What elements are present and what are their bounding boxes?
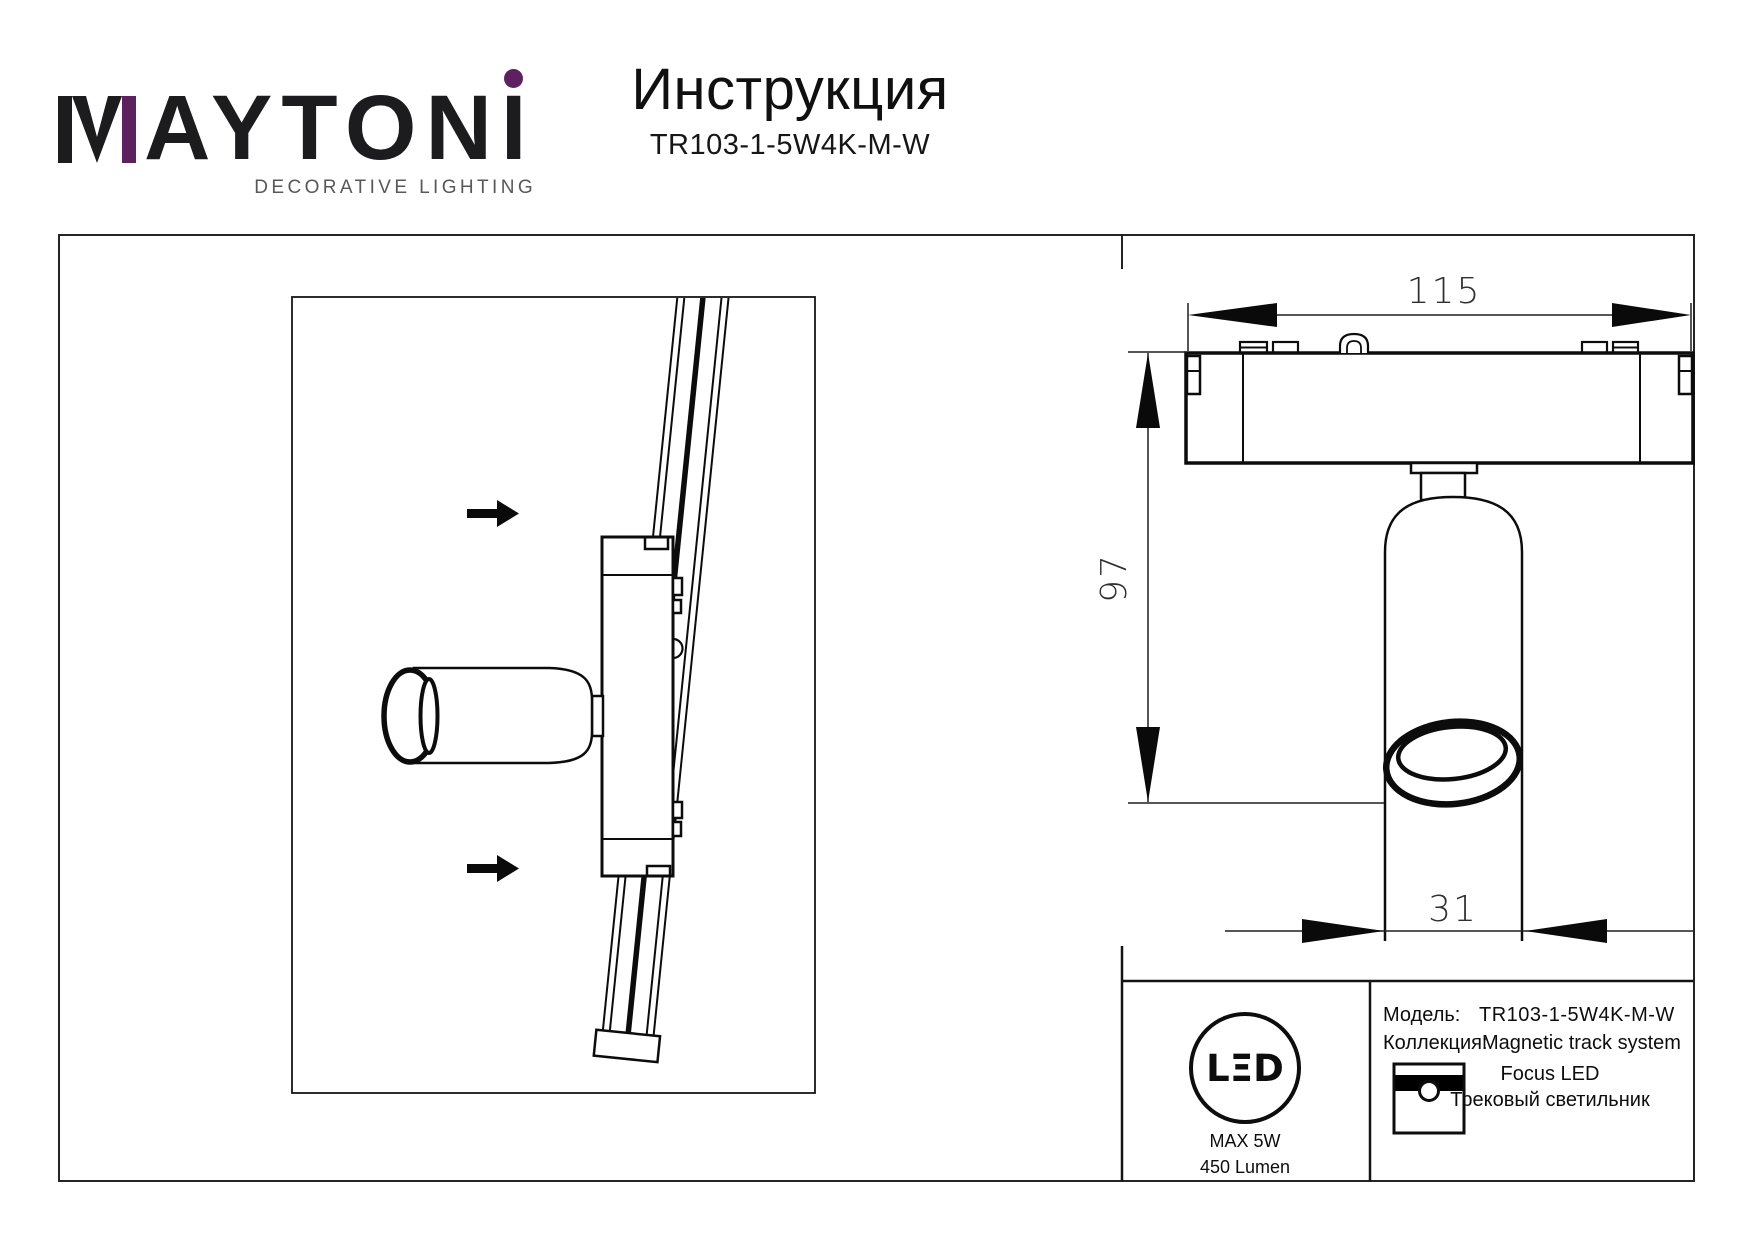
adapter-button	[1340, 334, 1368, 353]
insert-arrow-bottom	[467, 855, 519, 882]
track-end-cap	[594, 1030, 660, 1062]
model-value: TR103-1-5W4K-M-W	[1479, 1004, 1675, 1026]
led-badge: LΞD MAX 5W 450 Lumen	[1191, 1014, 1299, 1177]
led-luminous-flux: 450 Lumen	[1200, 1157, 1290, 1177]
collection-value: Magnetic track system	[1482, 1032, 1681, 1054]
led-max-power: MAX 5W	[1209, 1131, 1280, 1151]
dimension-width-value: 115	[1407, 271, 1482, 312]
spot-head-front	[1382, 463, 1524, 941]
spot-joint	[592, 696, 603, 736]
product-type: Трековый светильник	[1450, 1089, 1650, 1111]
luminaire-side-view	[384, 537, 683, 876]
product-info: Модель: TR103-1-5W4K-M-W Коллекция: Magn…	[1383, 1004, 1681, 1133]
dimension-height-value: 97	[1094, 553, 1135, 603]
dimension-width: 115	[1188, 271, 1691, 351]
model-label: Модель:	[1383, 1004, 1460, 1026]
mount-plate	[602, 537, 673, 876]
led-badge-text: LΞD	[1206, 1047, 1284, 1090]
installation-diagram	[292, 291, 815, 1093]
info-table: LΞD MAX 5W 450 Lumen Модель: TR103-1-5W4…	[1122, 946, 1693, 1181]
spot-body	[414, 668, 592, 763]
dimension-diameter-value: 31	[1428, 889, 1478, 930]
dimension-drawing: 115 97 31	[1094, 271, 1693, 943]
insert-arrow-top	[467, 500, 519, 527]
instruction-drawing: 115 97 31 LΞD MAX 5W 450 Lumen	[0, 0, 1754, 1241]
product-line: Focus LED	[1501, 1063, 1600, 1085]
track-adapter	[1186, 334, 1693, 463]
collection-label: Коллекция:	[1383, 1032, 1488, 1054]
